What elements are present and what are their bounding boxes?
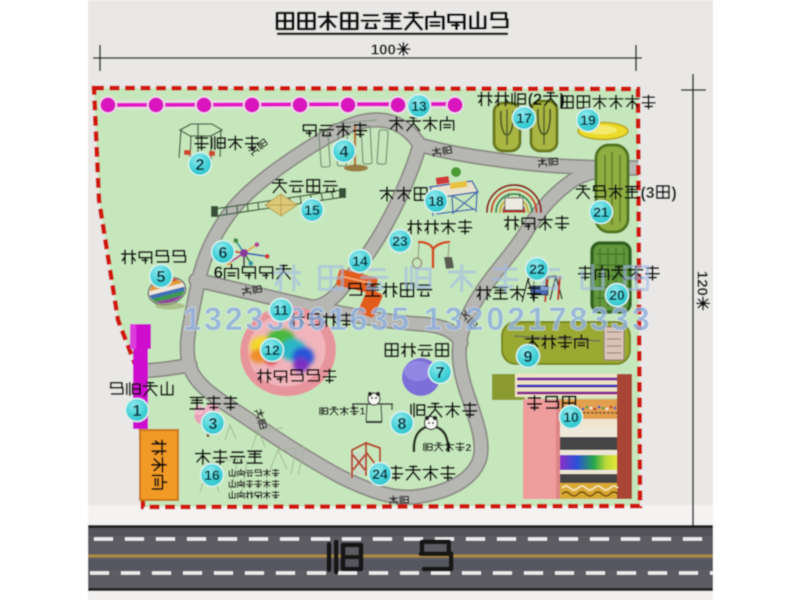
svg-text:2: 2 <box>196 157 205 174</box>
svg-text:): ) <box>671 185 676 202</box>
svg-text:13233861635 13202178333: 13233861635 13202178333 <box>183 301 652 337</box>
svg-text:9: 9 <box>524 349 533 366</box>
svg-text:23: 23 <box>392 233 408 249</box>
svg-text:17: 17 <box>516 110 532 126</box>
svg-text:21: 21 <box>593 204 609 220</box>
svg-text:14: 14 <box>352 253 368 269</box>
svg-text:7: 7 <box>436 365 445 382</box>
svg-text:16: 16 <box>204 467 220 483</box>
svg-text:100: 100 <box>371 41 396 58</box>
svg-text:18: 18 <box>428 193 444 209</box>
svg-text:11: 11 <box>274 302 289 318</box>
svg-text:19: 19 <box>580 112 596 128</box>
svg-text:120: 120 <box>694 271 711 296</box>
svg-text:2: 2 <box>465 442 471 454</box>
svg-text:1: 1 <box>360 407 366 418</box>
svg-text:(3: (3 <box>640 185 654 202</box>
svg-text:10: 10 <box>563 409 579 425</box>
svg-text:13: 13 <box>411 98 427 114</box>
svg-text:20: 20 <box>609 287 625 303</box>
svg-text:24: 24 <box>372 466 388 482</box>
svg-text:3: 3 <box>209 416 218 433</box>
svg-text:8: 8 <box>398 416 407 433</box>
svg-text:6: 6 <box>219 245 228 262</box>
svg-text:6: 6 <box>214 263 223 282</box>
svg-text:1: 1 <box>133 403 142 420</box>
svg-text:4: 4 <box>340 144 349 161</box>
svg-text:5: 5 <box>157 269 166 286</box>
svg-text:(2: (2 <box>528 91 543 109</box>
svg-text:12: 12 <box>264 342 280 358</box>
svg-text:22: 22 <box>529 261 545 277</box>
svg-text:15: 15 <box>304 202 320 218</box>
